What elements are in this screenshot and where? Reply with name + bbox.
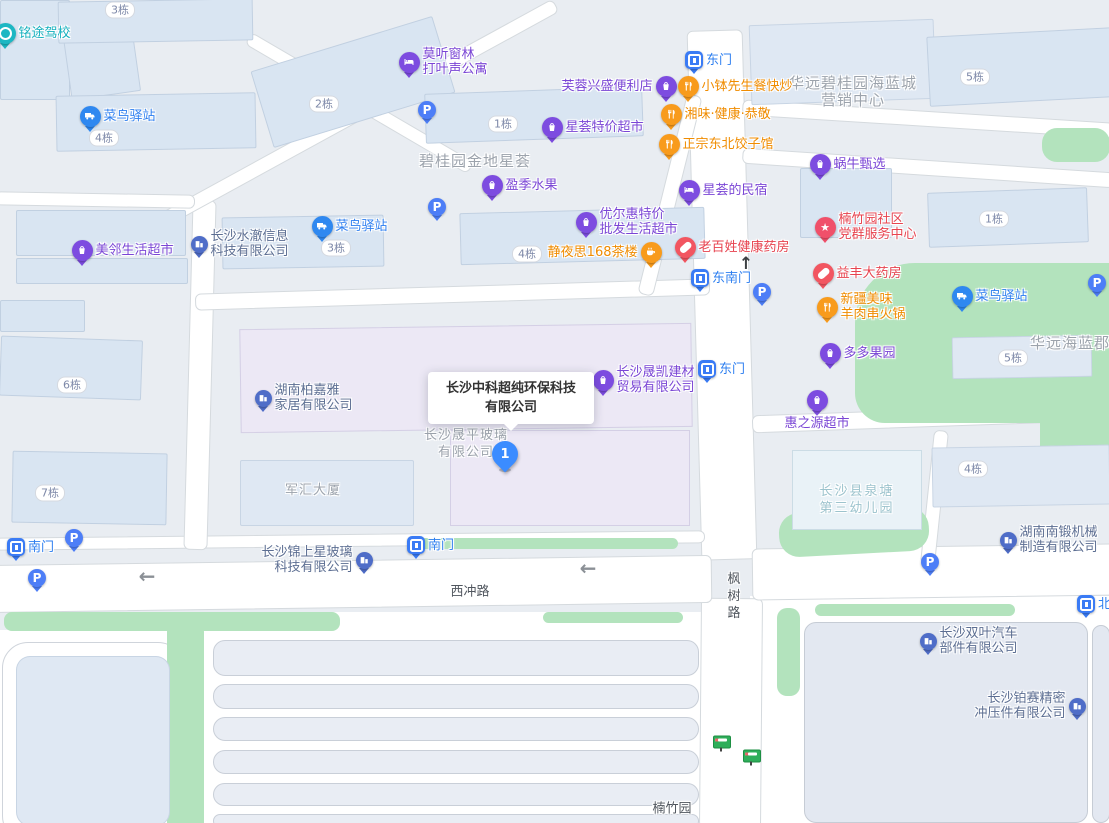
- map-pin-yingji-fruit[interactable]: [482, 175, 503, 206]
- map-pin-label-dongbei-dumplings[interactable]: 正宗东北饺子馆: [683, 137, 774, 152]
- map-pin-label-cainiao-station-mid[interactable]: 菜鸟驿站: [336, 219, 388, 234]
- shopping-bag-icon: [597, 374, 609, 386]
- map-pin-xinghui-supermarket[interactable]: [542, 117, 563, 148]
- map-pin-label-xinghui-supermarket[interactable]: 星荟特价超市: [566, 120, 644, 135]
- building-row: [213, 783, 699, 806]
- map-pin-parking-5[interactable]: P: [65, 529, 83, 557]
- map-pin-label-xiangwei-restaurant[interactable]: 湘味·健康·恭敬: [685, 107, 771, 122]
- parking-letter-icon: P: [1093, 276, 1102, 290]
- shopping-bag-icon: [814, 158, 826, 170]
- building-number-badge: 7栋: [35, 485, 65, 502]
- map-pin-shuangye-auto-parts[interactable]: [920, 633, 937, 660]
- map-pin-furong-store[interactable]: [656, 76, 677, 107]
- pin-tail: [825, 363, 835, 374]
- fork-knife-icon: [683, 81, 694, 92]
- area-label: 长沙县泉塘第三幼儿园: [819, 483, 894, 517]
- building-row: [213, 717, 699, 741]
- map-pin-nanduan-machinery[interactable]: [1000, 532, 1017, 559]
- truck-icon: [956, 290, 968, 302]
- pin-tail: [684, 200, 694, 211]
- parking-letter-icon: P: [33, 571, 42, 585]
- building-number-badge: 1栋: [488, 116, 518, 133]
- map-pin-parking-6[interactable]: P: [28, 569, 46, 597]
- map-pin-southeast-gate[interactable]: [691, 269, 709, 297]
- parking-letter-icon: P: [758, 285, 767, 299]
- map-pin-shengkai-building-materials[interactable]: [593, 370, 614, 401]
- map-pin-label-huizhiyuan-supermarket[interactable]: 惠之源超市: [784, 416, 849, 431]
- map-pin-east-gate-mid[interactable]: [698, 360, 716, 388]
- pin-tail: [1072, 714, 1082, 725]
- map-pin-label-yifeng-pharmacy[interactable]: 益丰大药房: [837, 266, 902, 281]
- company-building-icon: [1003, 535, 1013, 545]
- pin-tail: [925, 570, 935, 581]
- building-number-badge: 3栋: [105, 2, 135, 19]
- building-number-badge: 4栋: [958, 461, 988, 478]
- pin-tail: [85, 126, 95, 137]
- green-area: [420, 538, 678, 549]
- map-pin-label-xinghui-homestay[interactable]: 星荟的民宿: [703, 183, 768, 198]
- map-pin-label-woniu-select[interactable]: 蜗牛甄选: [834, 157, 886, 172]
- building-row: [213, 750, 699, 774]
- parking-letter-icon: P: [433, 200, 442, 214]
- star-icon: ★: [820, 222, 830, 233]
- company-building-icon: [359, 555, 369, 565]
- company-building-icon: [194, 239, 204, 249]
- map-pin-parking-1[interactable]: P: [418, 101, 436, 129]
- map-pin-label-xinjiang-bbq[interactable]: 新疆美味羊肉串火锅: [841, 292, 906, 322]
- pin-tail: [194, 252, 204, 263]
- steering-wheel-icon: [0, 27, 12, 40]
- building-number-badge: 4栋: [512, 246, 542, 263]
- company-building-icon: [1072, 701, 1082, 711]
- building-number-badge: 6栋: [57, 377, 87, 394]
- map-pin-meilin-supermarket[interactable]: [72, 240, 93, 271]
- pin-tail: [820, 237, 830, 248]
- road: [0, 191, 195, 208]
- building-row: [213, 684, 699, 709]
- pin-tail: [1003, 548, 1013, 559]
- map-pin-xinghui-homestay[interactable]: [679, 180, 700, 211]
- map-pin-label-nanduan-machinery[interactable]: 湖南南锻机械制造有限公司: [1020, 525, 1098, 555]
- map-pin-south-gate-mid[interactable]: [407, 536, 425, 564]
- pin-tail: [422, 118, 432, 129]
- pin-tail: [815, 174, 825, 185]
- shopping-bag-icon: [580, 216, 592, 228]
- map-pin-label-bojiaya-furniture[interactable]: 湖南柏嘉雅家居有限公司: [275, 383, 353, 413]
- map-pin-cainiao-station-east[interactable]: [952, 286, 973, 317]
- shopping-bag-icon: [486, 179, 498, 191]
- capsule-icon: [678, 240, 692, 254]
- building: [926, 27, 1109, 107]
- map-pin-duoduo-orchard[interactable]: [820, 343, 841, 374]
- building: [931, 444, 1109, 507]
- green-area: [1042, 128, 1109, 162]
- building: [58, 0, 254, 44]
- map-pin-label-bosai-precision-stamping[interactable]: 长沙铂赛精密冲压件有限公司: [974, 691, 1065, 721]
- map-pin-yifeng-pharmacy[interactable]: [813, 263, 834, 294]
- map-pin-bojiaya-furniture[interactable]: [255, 390, 272, 417]
- pin-tail: [77, 260, 87, 271]
- pin-tail: [258, 406, 268, 417]
- map-pin-cainiao-station-nw[interactable]: [80, 106, 101, 137]
- green-area: [815, 604, 1015, 616]
- pin-tail: [957, 306, 967, 317]
- area-label: 华远碧桂园海蓝城营销中心: [789, 75, 917, 109]
- map-pin-moting-apartment[interactable]: [399, 52, 420, 83]
- pin-tail: [581, 232, 591, 243]
- selected-place-marker[interactable]: 1: [487, 436, 524, 473]
- building-number-badge: 1栋: [979, 211, 1009, 228]
- pin-tail: [598, 390, 608, 401]
- map-pin-parking-2[interactable]: P: [428, 198, 446, 226]
- parking-letter-icon: P: [423, 103, 432, 117]
- map-pin-youerhui-supermarket[interactable]: [576, 212, 597, 243]
- map-pin-label-meilin-supermarket[interactable]: 美邻生活超市: [96, 243, 174, 258]
- selected-place-name-line1: 长沙中科超纯环保科技: [430, 379, 592, 398]
- map-pin-jingyesi-teahouse[interactable]: [641, 242, 662, 273]
- pin-tail: [646, 262, 656, 273]
- road-label: 枫树路: [723, 572, 742, 623]
- map-pin-label-furong-store[interactable]: 芙蓉兴盛便利店: [561, 79, 652, 94]
- map-pin-label-youerhui-supermarket[interactable]: 优尔惠特价批发生活超市: [600, 207, 678, 237]
- left-arrow-icon: ←: [580, 556, 597, 580]
- bus-stop-icon[interactable]: [743, 750, 761, 763]
- map-pin-xiaobo-restaurant[interactable]: [678, 76, 699, 107]
- fork-knife-icon: [666, 109, 677, 120]
- pin-tail: [1092, 291, 1102, 302]
- map-pin-shuiche-info-company[interactable]: [191, 236, 208, 263]
- road-fengshu: [699, 598, 763, 823]
- pin-tail: [547, 137, 557, 148]
- pin-tail: [0, 43, 10, 54]
- company-building-icon: [923, 636, 933, 646]
- map-pin-nanzhuyuan-community-center[interactable]: ★: [815, 217, 836, 248]
- pin-tail: [683, 96, 693, 107]
- pin-tail: [757, 300, 767, 311]
- shopping-bag-icon: [546, 121, 558, 133]
- truck-icon: [84, 110, 96, 122]
- gate-door-icon: [701, 363, 714, 376]
- map-pin-label-yingji-fruit[interactable]: 盈季水果: [506, 178, 558, 193]
- gate-door-icon: [1080, 598, 1093, 611]
- map-pin-label-south-gate-mid[interactable]: 南门: [428, 538, 454, 553]
- building: [16, 656, 170, 823]
- map-pin-label-nanzhuyuan-community-center[interactable]: 楠竹园社区党群服务中心: [839, 212, 917, 242]
- green-area: [777, 608, 800, 696]
- selected-place-label[interactable]: 长沙中科超纯环保科技 有限公司: [428, 372, 594, 424]
- map-pin-parking-4[interactable]: P: [1088, 274, 1106, 302]
- map-pin-parking-3[interactable]: P: [753, 283, 771, 311]
- map-pin-parking-7[interactable]: P: [921, 553, 939, 581]
- building-number-badge: 2栋: [309, 96, 339, 113]
- pin-tail: [69, 546, 79, 557]
- map-pin-label-moting-apartment[interactable]: 莫听窗林打叶声公寓: [423, 47, 488, 77]
- pin-tail: [487, 195, 497, 206]
- bus-stop-icon[interactable]: [713, 736, 731, 749]
- map-pin-label-southeast-gate[interactable]: 东南门: [712, 271, 751, 286]
- shopping-bag-icon: [660, 80, 672, 92]
- pin-tail: [432, 215, 442, 226]
- map-pin-label-jingyesi-teahouse[interactable]: 静夜思168茶楼: [548, 245, 638, 260]
- gate-door-icon: [688, 54, 701, 67]
- pin-tail: [923, 649, 933, 660]
- road-label: 楠竹园: [652, 798, 691, 817]
- green-area: [543, 612, 683, 623]
- map-pin-label-duoduo-orchard[interactable]: 多多果园: [844, 346, 896, 361]
- map-pin-label-shuiche-info-company[interactable]: 长沙水澈信息科技有限公司: [211, 229, 289, 259]
- pin-tail: [404, 72, 414, 83]
- area-label: 军汇大厦: [285, 482, 341, 499]
- pin-tail: [664, 154, 674, 165]
- pin-tail: [411, 553, 421, 564]
- map-pin-woniu-select[interactable]: [810, 154, 831, 185]
- company-building-icon: [258, 393, 268, 403]
- map-pin-label-cainiao-station-nw[interactable]: 菜鸟驿站: [104, 109, 156, 124]
- pin-tail: [359, 568, 369, 579]
- left-arrow-icon: ←: [139, 564, 156, 588]
- building-number-badge: 5栋: [960, 69, 990, 86]
- map-pin-bosai-precision-stamping[interactable]: [1069, 698, 1086, 725]
- gate-door-icon: [10, 541, 23, 554]
- shopping-bag-icon: [811, 394, 823, 406]
- gate-door-icon: [410, 539, 423, 552]
- shopping-bag-icon: [824, 347, 836, 359]
- map-pin-label-laobaixing-pharmacy[interactable]: 老百姓健康药房: [699, 240, 790, 255]
- pin-tail: [317, 236, 327, 247]
- map-pin-north-gate[interactable]: [1077, 595, 1095, 623]
- map-pin-label-shuangye-auto-parts[interactable]: 长沙双叶汽车部件有限公司: [940, 626, 1018, 656]
- map-pin-jinshangxing-glass[interactable]: [356, 552, 373, 579]
- pin-tail: [702, 377, 712, 388]
- map-pin-label-jinshangxing-glass[interactable]: 长沙锦上星玻璃科技有限公司: [261, 545, 352, 575]
- pin-tail: [680, 257, 690, 268]
- teacup-icon: [645, 246, 657, 258]
- building-row: [213, 640, 699, 676]
- building: [0, 300, 85, 332]
- building-number-badge: 5栋: [998, 350, 1028, 367]
- map-pin-label-east-gate-mid[interactable]: 东门: [719, 362, 745, 377]
- map-pin-laobaixing-pharmacy[interactable]: [675, 237, 696, 268]
- area-label: 华远海蓝郡: [1030, 335, 1109, 352]
- parking-letter-icon: P: [926, 555, 935, 569]
- map-pin-label-east-gate-top[interactable]: 东门: [706, 53, 732, 68]
- area-label: 碧桂园金地星荟: [419, 153, 531, 170]
- building: [424, 86, 644, 144]
- pin-tail: [822, 317, 832, 328]
- building-row: [213, 814, 699, 823]
- bed-icon: [403, 56, 415, 68]
- shopping-bag-icon: [76, 244, 88, 256]
- map-pin-xinjiang-bbq[interactable]: [817, 297, 838, 328]
- pin-tail: [818, 283, 828, 294]
- truck-icon: [316, 220, 328, 232]
- building: [1092, 625, 1109, 823]
- parking-letter-icon: P: [70, 531, 79, 545]
- gate-door-icon: [694, 272, 707, 285]
- map-pin-label-cainiao-station-east[interactable]: 菜鸟驿站: [976, 289, 1028, 304]
- road: [195, 278, 710, 310]
- map-pin-label-shengkai-building-materials[interactable]: 长沙晟凯建材贸易有限公司: [617, 365, 695, 395]
- selected-place-name-line2: 有限公司: [430, 398, 592, 417]
- marker-number: 1: [492, 441, 518, 467]
- bed-icon: [683, 184, 695, 196]
- map-canvas[interactable]: 铭途驾校菜鸟驿站菜鸟驿站美邻生活超市长沙水澈信息科技有限公司莫听窗林打叶声公寓芙…: [0, 0, 1109, 823]
- map-pin-south-gate-west[interactable]: [7, 538, 25, 566]
- fork-knife-icon: [822, 302, 833, 313]
- map-pin-mingtu-driving-school[interactable]: [0, 23, 16, 54]
- map-pin-label-mingtu-driving-school[interactable]: 铭途驾校: [19, 26, 71, 41]
- pin-tail: [11, 555, 21, 566]
- green-area: [167, 618, 204, 823]
- pin-tail: [695, 286, 705, 297]
- pin-tail: [32, 586, 42, 597]
- map-pin-label-north-gate[interactable]: 北门: [1098, 597, 1109, 612]
- map-pin-xiangwei-restaurant[interactable]: [661, 104, 682, 135]
- fork-knife-icon: [664, 139, 675, 150]
- building: [16, 258, 188, 284]
- map-pin-label-south-gate-west[interactable]: 南门: [28, 540, 54, 555]
- map-pin-label-xiaobo-restaurant[interactable]: 小钵先生餐快炒: [702, 79, 793, 94]
- map-pin-cainiao-station-mid[interactable]: [312, 216, 333, 247]
- road-label: 西冲路: [450, 581, 489, 600]
- pin-tail: [1081, 612, 1091, 623]
- map-pin-dongbei-dumplings[interactable]: [659, 134, 680, 165]
- capsule-icon: [816, 266, 830, 280]
